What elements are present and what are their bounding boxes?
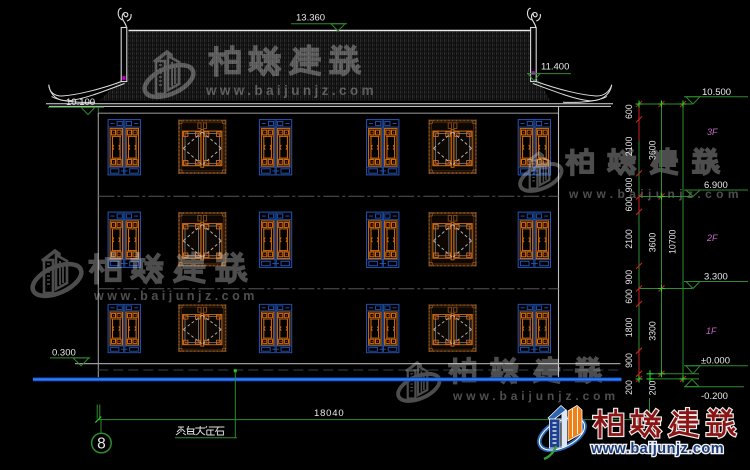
svg-text:3.300: 3.300 xyxy=(704,272,728,283)
svg-text:200: 200 xyxy=(648,381,658,396)
svg-text:www.baijunjz.com: www.baijunjz.com xyxy=(93,289,258,303)
svg-text:-0.200: -0.200 xyxy=(701,391,728,402)
svg-text:600: 600 xyxy=(624,197,634,212)
svg-text:www.baijunjz.com: www.baijunjz.com xyxy=(205,83,377,98)
svg-text:10.100: 10.100 xyxy=(66,97,95,108)
svg-text:1F: 1F xyxy=(706,326,717,336)
svg-text:www.baijunjz.com: www.baijunjz.com xyxy=(590,441,724,457)
svg-text:www.baijunjz.com: www.baijunjz.com xyxy=(452,389,619,403)
svg-text:1800: 1800 xyxy=(624,318,634,338)
svg-text:10700: 10700 xyxy=(668,229,678,254)
svg-text:600: 600 xyxy=(624,289,634,304)
svg-text:13.360: 13.360 xyxy=(296,13,325,24)
svg-text:3600: 3600 xyxy=(648,233,658,253)
svg-text:3300: 3300 xyxy=(648,321,658,341)
svg-text:6.900: 6.900 xyxy=(704,180,728,191)
svg-text:11.400: 11.400 xyxy=(541,62,569,73)
svg-text:2100: 2100 xyxy=(624,137,634,157)
svg-text:900: 900 xyxy=(624,270,634,285)
svg-text:2100: 2100 xyxy=(624,229,634,249)
svg-text:8: 8 xyxy=(97,436,106,453)
svg-text:0.300: 0.300 xyxy=(52,348,76,359)
svg-text:18040: 18040 xyxy=(314,408,344,419)
svg-text:900: 900 xyxy=(624,353,634,368)
svg-text:3F: 3F xyxy=(707,127,718,137)
svg-text:2F: 2F xyxy=(706,233,718,243)
svg-text:600: 600 xyxy=(624,104,634,119)
svg-text:200: 200 xyxy=(624,380,634,395)
svg-text:900: 900 xyxy=(624,178,634,193)
svg-text:±0.000: ±0.000 xyxy=(701,356,730,367)
svg-text:3600: 3600 xyxy=(648,140,658,160)
